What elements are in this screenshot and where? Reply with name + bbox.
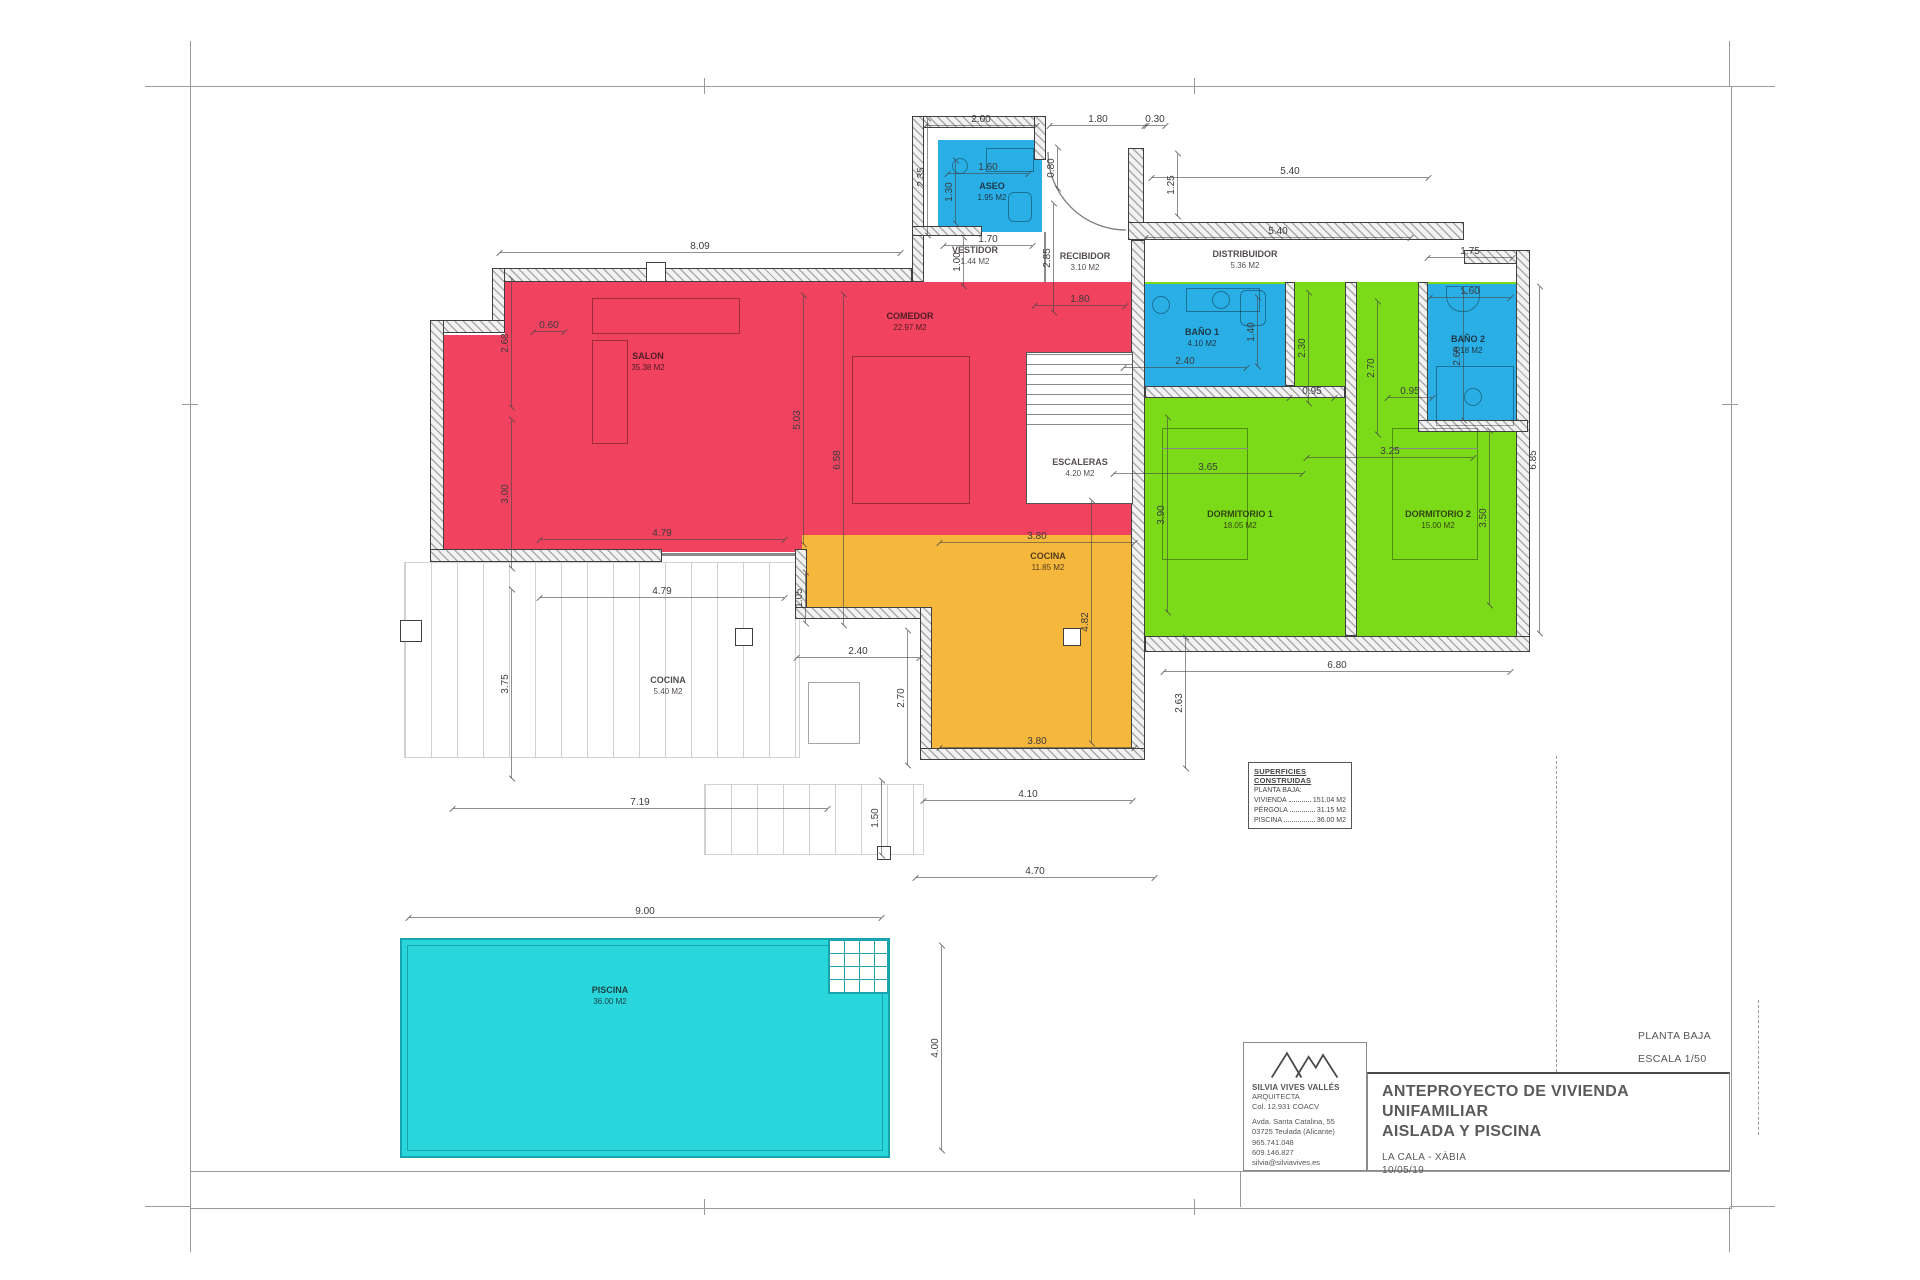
glass-door-line <box>662 553 802 556</box>
dimension-label: 1.30 <box>944 161 956 223</box>
dimension-label: 0.60 <box>534 320 564 332</box>
room-label-comedor: COMEDOR22.97 M2 <box>887 311 934 333</box>
project-date: 10/05/19 <box>1382 1165 1715 1176</box>
sink <box>1152 296 1170 314</box>
architect-logo-icon <box>1269 1047 1341 1081</box>
room-label-bano-1: BAÑO 14.10 M2 <box>1185 327 1219 349</box>
dimension-label: 8.09 <box>500 241 900 253</box>
room-label-cocina: COCINA11.85 M2 <box>1030 551 1066 573</box>
room-label-piscina: PISCINA36.00 M2 <box>592 985 629 1007</box>
dimension-label: 2.35 <box>916 119 928 235</box>
dimension-label: 6.58 <box>832 295 844 625</box>
dimension-label: 1.60 <box>1430 286 1510 298</box>
pool-steps <box>828 940 888 994</box>
swimming-pool <box>400 938 890 1158</box>
legend-leader <box>1289 801 1311 802</box>
wall <box>920 607 932 760</box>
dimension-label: 2.40 <box>1124 356 1246 368</box>
room-label-aseo: ASEO1.95 M2 <box>978 181 1007 203</box>
project-title-line1: ANTEPROYECTO DE VIVIENDA UNIFAMILIAR <box>1382 1082 1715 1122</box>
dimension-label: 3.50 <box>1478 431 1490 605</box>
dimension-label: 0.80 <box>1046 148 1058 188</box>
dimension-label: 2.70 <box>1366 302 1378 434</box>
dimension-label: 1.80 <box>1050 114 1146 126</box>
areas-legend: SUPERFICIES CONSTRUIDAS PLANTA BAJA: VIV… <box>1248 762 1352 829</box>
dimension-label: 3.65 <box>1114 462 1302 474</box>
legend-title: SUPERFICIES CONSTRUIDAS <box>1254 767 1346 785</box>
wall <box>1285 282 1295 386</box>
room-label-bano-2: BAÑO 24.18 M2 <box>1451 334 1485 356</box>
title-band-divider <box>1240 1171 1241 1207</box>
wall <box>1418 282 1428 432</box>
room-label-vestidor: VESTIDOR1.44 M2 <box>952 245 998 267</box>
dimension-label: 3.80 <box>940 736 1134 748</box>
project-title-block: ANTEPROYECTO DE VIVIENDA UNIFAMILIAR AIS… <box>1367 1072 1730 1171</box>
legend-value: 36.00 M2 <box>1317 817 1346 824</box>
sink <box>1212 291 1230 309</box>
room-label-cocina-ext: COCINA5.40 M2 <box>650 675 686 697</box>
legend-row: PISCINA 36.00 M2 <box>1254 817 1346 824</box>
architect-name: SILVIA VIVES VALLÉS <box>1252 1083 1358 1092</box>
shower-drain <box>1464 388 1482 406</box>
dimension-label: 4.82 <box>1080 501 1092 743</box>
dimension-label: 2.63 <box>1174 638 1186 768</box>
dimension-label: 4.79 <box>540 586 784 598</box>
dimension-label: 1.75 <box>1428 246 1512 258</box>
dimension-label: 5.03 <box>792 296 804 544</box>
wall <box>1131 240 1145 760</box>
legend-label: VIVIENDA <box>1254 797 1287 804</box>
drawing-sheet: SALON35.38 M2COMEDOR22.97 M2RECIBIDOR3.1… <box>0 0 1920 1280</box>
dimension-label: 1.05 <box>794 573 806 623</box>
legend-leader <box>1290 811 1315 812</box>
legend-row: PÉRGOLA 31.15 M2 <box>1254 807 1346 814</box>
dimension-label: 6.80 <box>1164 660 1510 672</box>
room-label-recibidor: RECIBIDOR3.10 M2 <box>1060 251 1111 273</box>
dimension-label: 2.70 <box>896 631 908 765</box>
dimension-label: 3.25 <box>1307 446 1473 458</box>
dimension-label: 6.85 <box>1528 287 1540 633</box>
wall <box>1345 282 1357 636</box>
wall <box>795 607 932 619</box>
pool-waterline <box>407 945 883 1151</box>
architect-license: Col. 12.931 COACV <box>1252 1102 1358 1112</box>
dimension-label: 1.80 <box>1035 294 1125 306</box>
dimension-label: 3.80 <box>940 531 1134 543</box>
staircase <box>1026 352 1133 504</box>
room-label-escaleras: ESCALERAS4.20 M2 <box>1052 457 1108 479</box>
architect-phone1: 965.741.048 <box>1252 1138 1358 1148</box>
dimension-label: 3.90 <box>1156 418 1168 612</box>
plan-scale: ESCALA 1/50 <box>1638 1053 1707 1065</box>
architect-address2: 03725 Teulada (Alicante) <box>1252 1127 1358 1137</box>
wall <box>920 748 1145 760</box>
dimension-label: 3.75 <box>500 590 512 778</box>
room-label-salon: SALON35.38 M2 <box>631 351 664 373</box>
wall <box>430 320 444 562</box>
wall <box>1145 636 1530 652</box>
terrace-deck <box>704 784 924 855</box>
dimension-label: 5.40 <box>1152 166 1428 178</box>
dimension-label: 1.50 <box>870 781 882 855</box>
pergola-column <box>1063 628 1081 646</box>
toilet <box>1008 192 1032 222</box>
legend-value: 31.15 M2 <box>1317 807 1346 814</box>
dimension-label: 5.40 <box>1146 226 1410 238</box>
dimension-label: 4.70 <box>916 866 1154 878</box>
sofa <box>592 298 740 334</box>
architect-phone2: 609.146.827 <box>1252 1148 1358 1158</box>
dimension-label: 4.10 <box>924 789 1132 801</box>
room-label-dormitorio-2: DORMITORIO 215.00 M2 <box>1405 509 1471 531</box>
dashed-reference-line <box>1758 1000 1759 1135</box>
legend-leader <box>1284 821 1315 822</box>
zone-kitchen <box>932 612 1133 748</box>
sofa <box>592 340 628 444</box>
project-title-line2: AISLADA Y PISCINA <box>1382 1122 1715 1142</box>
legend-label: PISCINA <box>1254 817 1282 824</box>
dimension-label: 0.30 <box>1145 114 1165 126</box>
dining-table <box>852 356 970 504</box>
dimension-label: 0.95 <box>1388 386 1432 398</box>
architect-address1: Avda. Santa Catalina, 55 <box>1252 1117 1358 1127</box>
stair-treads <box>1027 353 1132 425</box>
legend-subtitle: PLANTA BAJA: <box>1254 787 1346 794</box>
kitchen-counter <box>808 682 860 744</box>
dimension-label: 1.60 <box>948 162 1028 174</box>
wall <box>430 549 662 562</box>
dimension-label: 3.00 <box>500 420 512 568</box>
room-label-distribuidor: DISTRIBUIDOR5.36 M2 <box>1213 249 1278 271</box>
dimension-label: 0.95 <box>1290 386 1334 398</box>
bed-pillow-line <box>1162 448 1248 449</box>
legend-row: VIVIENDA 151.04 M2 <box>1254 797 1346 804</box>
legend-label: PÉRGOLA <box>1254 807 1288 814</box>
dimension-label: 1.40 <box>1246 298 1258 366</box>
project-location: LA CALA - XÀBIA <box>1382 1152 1715 1163</box>
dimension-label: 4.79 <box>540 528 784 540</box>
dimension-label: 2.00 <box>926 114 1036 126</box>
pergola-column <box>735 628 753 646</box>
dimension-label: 2.68 <box>500 279 512 407</box>
dimension-label: 1.25 <box>1166 154 1178 216</box>
legend-value: 151.04 M2 <box>1313 797 1346 804</box>
pergola-column <box>400 620 422 642</box>
dashed-reference-line <box>1556 756 1557 1072</box>
dimension-label: 7.19 <box>453 797 827 809</box>
architect-block: SILVIA VIVES VALLÉS ARQUITECTA Col. 12.9… <box>1243 1042 1367 1171</box>
architect-role: ARQUITECTA <box>1252 1092 1358 1102</box>
room-label-dormitorio-1: DORMITORIO 118.05 M2 <box>1207 509 1273 531</box>
dimension-label: 4.00 <box>930 946 942 1150</box>
wall-pier <box>646 262 666 282</box>
wall <box>495 268 912 282</box>
architect-email: silvia@silviavives.es <box>1252 1158 1358 1168</box>
plan-name: PLANTA BAJA <box>1638 1030 1711 1042</box>
dimension-label: 9.00 <box>409 906 881 918</box>
